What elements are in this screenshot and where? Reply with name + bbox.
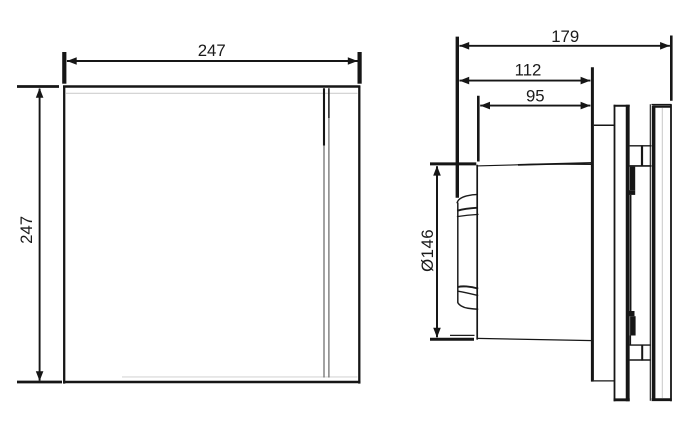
svg-text:179: 179	[551, 27, 579, 46]
svg-text:95: 95	[526, 87, 545, 106]
svg-text:Ø146: Ø146	[418, 229, 437, 272]
svg-text:112: 112	[515, 61, 542, 80]
svg-text:247: 247	[198, 41, 226, 60]
svg-text:247: 247	[17, 216, 36, 244]
